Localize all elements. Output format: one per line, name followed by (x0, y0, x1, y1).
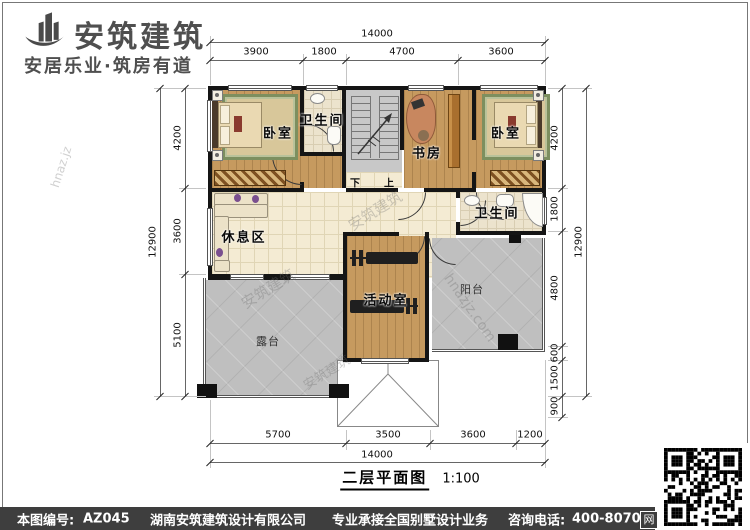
room-label-terrace: 露台 (256, 333, 280, 349)
wall (347, 232, 399, 236)
wardrobe (490, 170, 540, 186)
plant (216, 248, 223, 257)
wardrobe (214, 170, 286, 186)
dim-label: 4200 (173, 125, 184, 150)
room-label-balcony: 阳台 (460, 281, 484, 297)
plan-scale: 1:100 (442, 472, 479, 487)
bed-throw (234, 116, 242, 132)
gym-bench (366, 252, 418, 264)
plant (252, 195, 259, 203)
plan-title: 二层平面图 (340, 469, 429, 491)
window (361, 358, 409, 364)
room-label-bath-top: 卫生间 (299, 110, 344, 129)
plan-title-block: 二层平面图 1:100 (340, 467, 480, 488)
extension-line (548, 231, 568, 232)
wall (506, 188, 546, 192)
wall (208, 274, 230, 280)
phone-label: 咨询电话: (508, 509, 565, 528)
wall (208, 188, 304, 192)
sofa (214, 260, 230, 272)
dim-label: 3600 (173, 218, 184, 243)
room-label-activity: 活动室 (363, 290, 408, 309)
wall (400, 90, 404, 150)
dim-label: 1800 (550, 196, 561, 221)
title-bar: 本图编号: AZ045 湖南安筑建筑设计有限公司 专业承接全国别墅设计业务 咨询… (0, 507, 750, 530)
room-label-lounge: 休息区 (221, 227, 266, 246)
window (228, 85, 292, 91)
qr-code (655, 443, 750, 530)
company-slogan: 安居乐业·筑房有道 (24, 52, 193, 78)
stairs-down-label: 下 (350, 175, 360, 190)
extension-line (548, 417, 568, 418)
dim-label-bottom-total: 14000 (361, 450, 393, 461)
dimension-line (210, 42, 546, 43)
dim-label: 1800 (311, 47, 336, 58)
porch-roof-outline (337, 360, 439, 428)
chair (418, 130, 429, 141)
staircase (346, 90, 402, 172)
nightstand (533, 90, 544, 101)
service-text: 专业承接全国别墅设计业务 (332, 509, 488, 528)
window (290, 274, 330, 280)
stairs-up-label: 上 (384, 175, 394, 190)
column-post (498, 334, 518, 350)
wall (343, 232, 347, 362)
extension-line (545, 360, 546, 468)
plant (234, 194, 241, 202)
room-label-bedroom-left: 卧室 (263, 123, 293, 142)
drawing-sheet: 安筑建筑 安居乐业·筑房有道 (0, 0, 750, 530)
toilet (327, 126, 341, 145)
room-label-bath-right: 卫生间 (474, 203, 519, 222)
room-label-bedroom-right: 卧室 (491, 123, 521, 142)
dim-label: 3900 (243, 47, 268, 58)
barbell-bar (350, 257, 367, 259)
pillow (220, 126, 230, 145)
nightstand (533, 150, 544, 161)
nightstand (212, 150, 223, 161)
dim-label-top-total: 14000 (361, 29, 393, 40)
company-logo-icon (22, 8, 72, 54)
nightstand (212, 90, 223, 101)
extension-line (210, 400, 211, 468)
stair-direction-arrow (346, 90, 402, 172)
wall (343, 358, 361, 362)
dimension-line (210, 60, 546, 61)
dimension-line (185, 88, 186, 396)
window (230, 274, 264, 280)
dim-label: 1500 (550, 365, 561, 390)
dim-label: 900 (550, 396, 561, 415)
wall (409, 358, 429, 362)
extension-line (548, 188, 568, 189)
wall (456, 231, 546, 235)
dim-label: 3600 (488, 47, 513, 58)
dimension-line (562, 88, 563, 417)
sheet-number-label: 本图编号: (17, 509, 74, 528)
dim-label: 5100 (173, 322, 184, 347)
window (408, 85, 444, 91)
dim-label-right-total: 12900 (574, 226, 585, 258)
window (207, 208, 213, 266)
wall (456, 192, 460, 198)
sheet-number: AZ045 (83, 511, 130, 526)
wall (472, 172, 476, 192)
watermark: hnaz.jz (48, 145, 74, 190)
dimension-line (210, 462, 546, 463)
column-post (329, 384, 349, 398)
pillow (220, 105, 230, 124)
dim-label: 4700 (389, 47, 414, 58)
window (306, 85, 338, 91)
qr-code-image (664, 448, 742, 526)
dim-label: 3600 (460, 430, 485, 441)
dim-label-left-total: 12900 (148, 226, 159, 258)
sink (310, 93, 325, 104)
wall (300, 152, 346, 156)
bookshelf (448, 94, 460, 168)
pillow (526, 105, 536, 124)
dim-label: 4200 (550, 125, 561, 150)
room-label-study: 书房 (412, 143, 442, 162)
window (480, 85, 538, 91)
wall (264, 274, 290, 280)
wall (425, 232, 429, 362)
extension-line (154, 396, 206, 397)
wall (472, 90, 476, 140)
web-badge: 网 (640, 511, 658, 529)
dim-label: 3500 (375, 430, 400, 441)
dimension-line (586, 88, 587, 396)
dimension-line (210, 443, 546, 444)
wall (342, 90, 346, 188)
wall (424, 188, 476, 192)
dim-label: 4800 (550, 275, 561, 300)
pillow (526, 126, 536, 145)
dim-label: 600 (550, 343, 561, 362)
company-name-footer: 湖南安筑建筑设计有限公司 (150, 509, 306, 528)
company-name: 安筑建筑 (74, 12, 206, 56)
extension-line (154, 88, 206, 89)
dim-label: 1200 (517, 430, 542, 441)
dim-label: 5700 (265, 430, 290, 441)
dimension-line (160, 88, 161, 396)
